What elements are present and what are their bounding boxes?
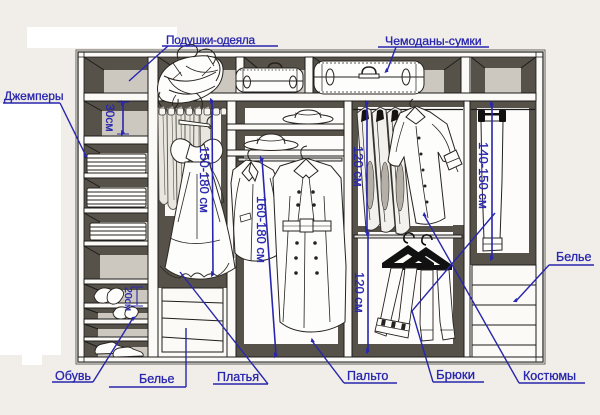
svg-text:30см: 30см [103, 104, 117, 132]
svg-text:Джемперы: Джемперы [4, 89, 64, 103]
svg-text:Белье: Белье [556, 250, 592, 264]
svg-text:Платья: Платья [217, 370, 259, 384]
svg-text:Белье: Белье [139, 372, 175, 386]
svg-text:Обувь: Обувь [55, 369, 91, 383]
svg-text:Подушки-одеяла: Подушки-одеяла [166, 33, 255, 47]
svg-text:140-150 см: 140-150 см [476, 142, 491, 209]
svg-text:120 см: 120 см [351, 146, 366, 187]
svg-text:20см: 20см [122, 287, 134, 311]
svg-text:Пальто: Пальто [347, 369, 388, 383]
svg-text:Брюки: Брюки [436, 367, 475, 382]
svg-text:160-180 см: 160-180 см [254, 196, 269, 263]
svg-text:Чемоданы-сумки: Чемоданы-сумки [385, 34, 482, 48]
svg-text:150-180 см: 150-180 см [197, 146, 212, 213]
svg-text:120 см: 120 см [352, 272, 367, 313]
svg-text:Костюмы: Костюмы [523, 369, 576, 383]
